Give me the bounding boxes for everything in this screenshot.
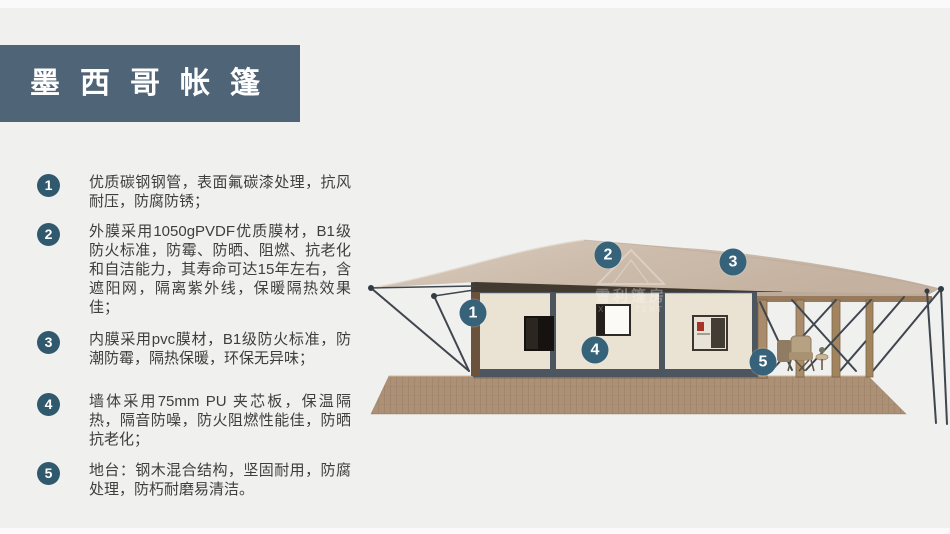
feature-item-3: 3 内膜采用pvc膜材，B1级防火标准，防潮防霉，隔热保暖，环保无异味； bbox=[36, 330, 352, 368]
feature-text: 优质碳钢钢管，表面氟碳漆处理，抗风耐压，防腐防锈； bbox=[89, 173, 351, 211]
pergola-beam bbox=[757, 296, 932, 302]
page-title: 墨西哥帐篷 bbox=[0, 45, 300, 122]
callout-marker-1: 1 bbox=[460, 300, 487, 327]
callout-marker-5: 5 bbox=[750, 349, 777, 376]
callout-marker-3: 3 bbox=[720, 249, 747, 276]
feature-text: 内膜采用pvc膜材，B1级防火标准，防潮防霉，隔热保暖，环保无异味； bbox=[89, 330, 351, 368]
bottom-margin-strip bbox=[0, 528, 950, 534]
feature-item-4: 4 墙体采用75mm PU 夹芯板，保温隔热，隔音防噪，防火阻燃性能佳，防晒抗老… bbox=[36, 392, 352, 449]
tent-illustration: 雪利篷房 XUELI TENT bbox=[360, 218, 950, 430]
tent-drawing: 雪利篷房 XUELI TENT bbox=[360, 218, 950, 430]
feature-number-badge: 4 bbox=[37, 393, 60, 416]
feature-number-badge: 2 bbox=[37, 223, 60, 246]
window-left bbox=[524, 316, 554, 351]
feature-list: 1 优质碳钢钢管，表面氟碳漆处理，抗风耐压，防腐防锈； 2 外膜采用1050gP… bbox=[36, 173, 352, 499]
feature-number-badge: 5 bbox=[37, 462, 60, 485]
callout-marker-4: 4 bbox=[582, 337, 609, 364]
window-right bbox=[693, 316, 727, 350]
feature-item-2: 2 外膜采用1050gPVDF优质膜材，B1级防火标准，防霉、防晒、阻燃、抗老化… bbox=[36, 222, 352, 317]
feature-text: 地台：钢木混合结构，坚固耐用，防腐处理，防朽耐磨易清洁。 bbox=[89, 461, 351, 499]
feature-text: 外膜采用1050gPVDF优质膜材，B1级防火标准，防霉、防晒、阻燃、抗老化和自… bbox=[89, 222, 351, 317]
feature-item-1: 1 优质碳钢钢管，表面氟碳漆处理，抗风耐压，防腐防锈； bbox=[36, 173, 352, 211]
title-box: 墨西哥帐篷 bbox=[0, 45, 300, 122]
callout-marker-2: 2 bbox=[595, 242, 622, 269]
feature-number-badge: 1 bbox=[37, 174, 60, 197]
product-slide: 墨西哥帐篷 1 优质碳钢钢管，表面氟碳漆处理，抗风耐压，防腐防锈； 2 外膜采用… bbox=[0, 0, 950, 534]
top-margin-strip bbox=[0, 0, 950, 8]
watermark-en: XUELI TENT bbox=[598, 305, 664, 314]
watermark-cn: 雪利篷房 bbox=[595, 287, 667, 305]
feature-number-badge: 3 bbox=[37, 331, 60, 354]
feature-text: 墙体采用75mm PU 夹芯板，保温隔热，隔音防噪，防火阻燃性能佳，防晒抗老化； bbox=[89, 392, 351, 449]
deck-platform bbox=[371, 376, 906, 414]
feature-item-5: 5 地台：钢木混合结构，坚固耐用，防腐处理，防朽耐磨易清洁。 bbox=[36, 461, 352, 499]
